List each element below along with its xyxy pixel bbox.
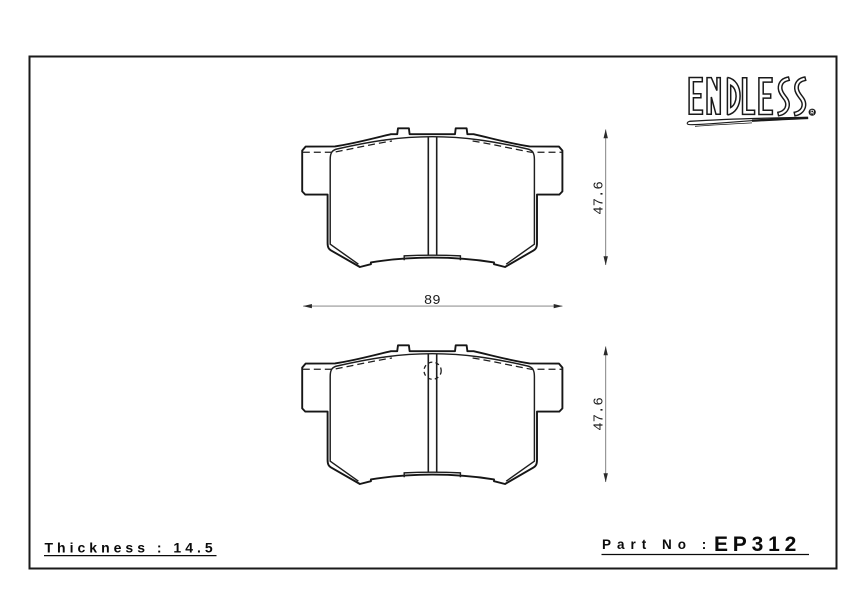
svg-text:47.6: 47.6 [591, 397, 607, 431]
svg-text:Part No :: Part No : [602, 537, 712, 552]
svg-text:47.6: 47.6 [591, 181, 607, 215]
svg-text:EP312: EP312 [714, 533, 801, 556]
svg-text:89: 89 [424, 293, 441, 309]
svg-text:Thickness : 14.5: Thickness : 14.5 [45, 539, 217, 555]
